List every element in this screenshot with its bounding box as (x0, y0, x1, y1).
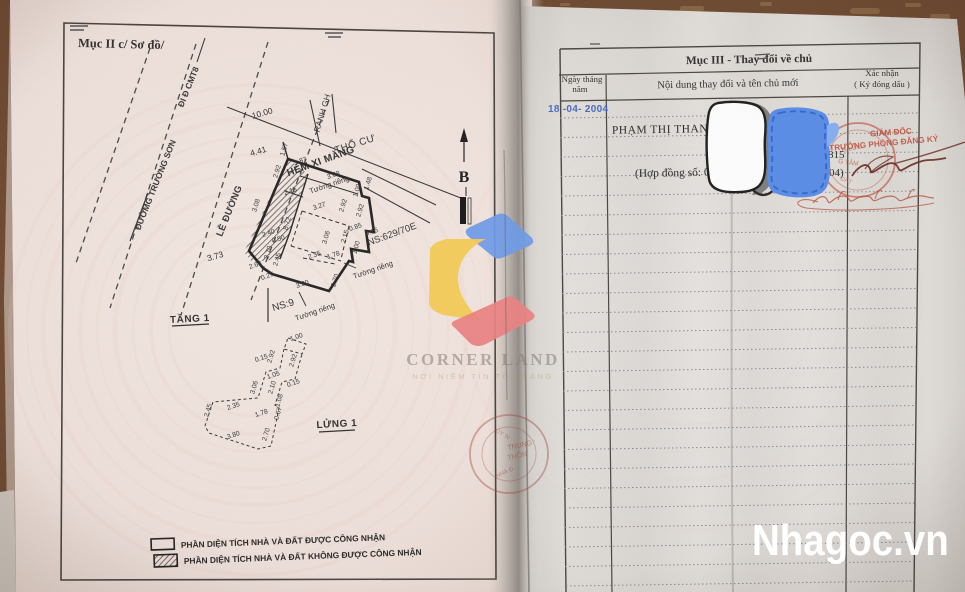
svg-text:Nhagoc.vn: Nhagoc.vn (752, 516, 949, 565)
